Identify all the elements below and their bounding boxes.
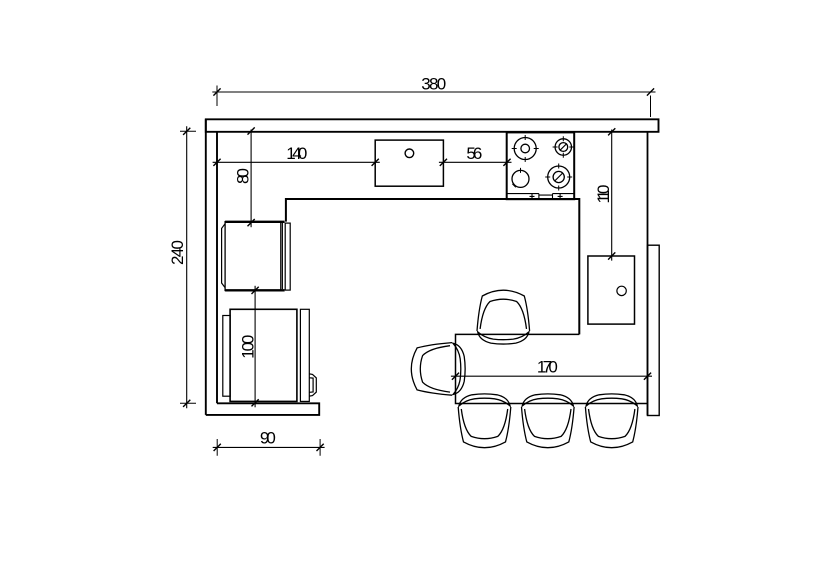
svg-text:110: 110 <box>594 185 613 204</box>
svg-text:90: 90 <box>260 429 276 448</box>
svg-text:80: 80 <box>234 168 253 184</box>
svg-text:56: 56 <box>466 144 482 163</box>
svg-text:140: 140 <box>286 144 307 163</box>
svg-text:170: 170 <box>537 358 558 377</box>
svg-text:100: 100 <box>239 335 258 359</box>
svg-text:240: 240 <box>168 240 187 265</box>
svg-text:380: 380 <box>421 74 446 93</box>
